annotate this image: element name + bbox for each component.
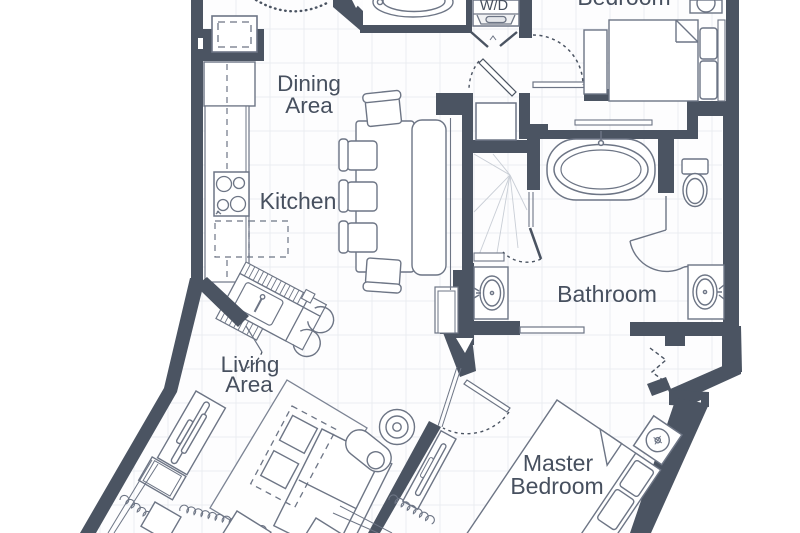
svg-text:W/D: W/D [480, 0, 508, 14]
svg-text:Bedroom: Bedroom [510, 473, 603, 499]
svg-text:Area: Area [285, 93, 333, 118]
svg-text:Area: Area [225, 372, 273, 397]
svg-text:Bathroom: Bathroom [557, 281, 657, 307]
svg-text:Kitchen: Kitchen [260, 188, 337, 214]
svg-text:Bedroom: Bedroom [577, 0, 670, 10]
